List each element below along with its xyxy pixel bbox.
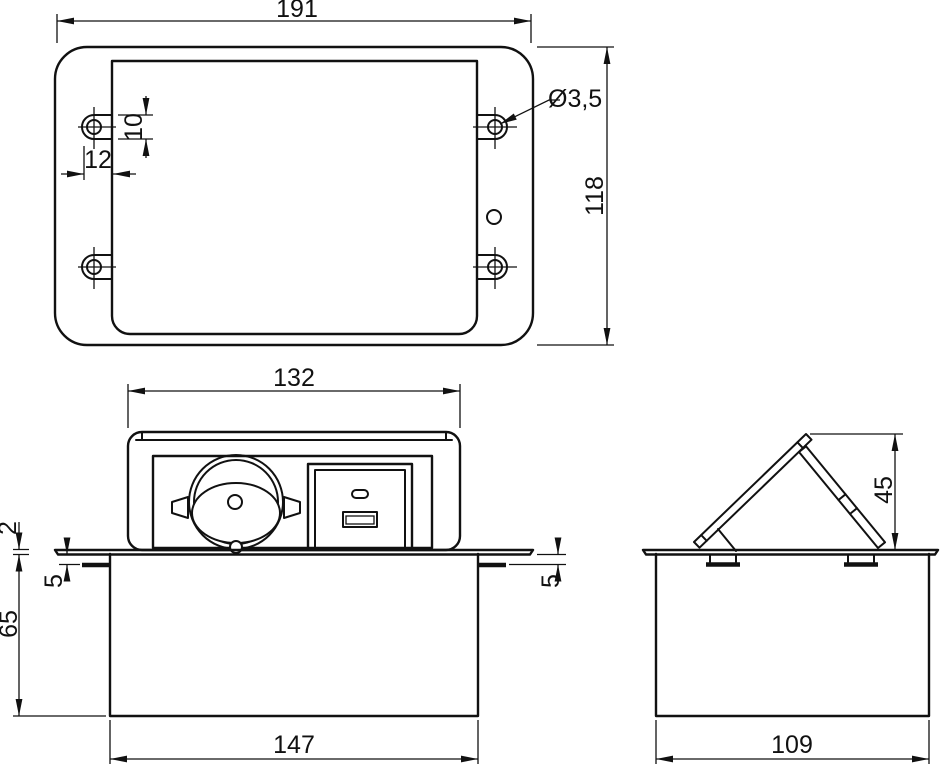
dim-head-width: 132 bbox=[128, 364, 460, 428]
front-box bbox=[110, 554, 478, 716]
usb-module-frame bbox=[308, 464, 412, 548]
dim-label: 5 bbox=[537, 574, 565, 588]
dim-flange-thickness: 2 bbox=[0, 521, 29, 554]
dim-label: Ø3,5 bbox=[548, 85, 602, 113]
extension-lines bbox=[13, 550, 29, 555]
drawing-canvas: 191 118 10 12 Ø3,5 bbox=[0, 0, 941, 767]
dim-label: 191 bbox=[276, 0, 318, 23]
dim-label: 118 bbox=[581, 176, 609, 216]
flange-outline bbox=[55, 47, 533, 345]
dim-label: 147 bbox=[273, 731, 315, 759]
dim-lid-open-height: 45 bbox=[810, 434, 903, 550]
open-lid bbox=[694, 434, 812, 548]
dim-label: 65 bbox=[0, 610, 23, 638]
technical-drawing: 191 118 10 12 Ø3,5 bbox=[0, 0, 941, 767]
side-box bbox=[656, 554, 929, 716]
cutout-outline bbox=[112, 61, 477, 334]
top-view: 191 118 10 12 Ø3,5 bbox=[55, 0, 614, 345]
hinge-strut bbox=[718, 529, 736, 551]
dim-clamp-gap-left: 5 bbox=[40, 540, 80, 588]
dim-clamp-gap-right: 5 bbox=[509, 540, 566, 588]
front-view: 132 2 65 5 5 bbox=[0, 364, 566, 764]
dim-label: 109 bbox=[771, 731, 813, 759]
dim-front-box-width: 147 bbox=[110, 720, 478, 764]
dim-label: 2 bbox=[0, 521, 22, 535]
callout-hole-diameter: Ø3,5 bbox=[500, 85, 602, 124]
tabletop-flange-side bbox=[643, 550, 938, 555]
dim-label: 132 bbox=[273, 364, 315, 392]
dim-tab-height: 10 bbox=[118, 96, 153, 158]
dim-label: 10 bbox=[120, 113, 148, 141]
dim-top-width: 191 bbox=[57, 0, 531, 43]
dim-label: 12 bbox=[84, 146, 112, 174]
dim-tab-offset: 12 bbox=[61, 146, 136, 180]
dim-side-box-width: 109 bbox=[656, 720, 929, 764]
side-view: 45 109 bbox=[643, 434, 938, 764]
socket-pin-hole bbox=[228, 495, 242, 509]
dim-label: 5 bbox=[40, 574, 68, 588]
extension-lines bbox=[509, 555, 566, 565]
socket-recess bbox=[192, 483, 280, 543]
mounting-clamps-side bbox=[706, 555, 878, 565]
clamp-walls bbox=[710, 555, 874, 562]
usb-module bbox=[308, 464, 412, 548]
release-button-hole bbox=[487, 210, 501, 224]
tabletop-flange bbox=[55, 550, 533, 555]
dim-label: 45 bbox=[870, 476, 898, 504]
